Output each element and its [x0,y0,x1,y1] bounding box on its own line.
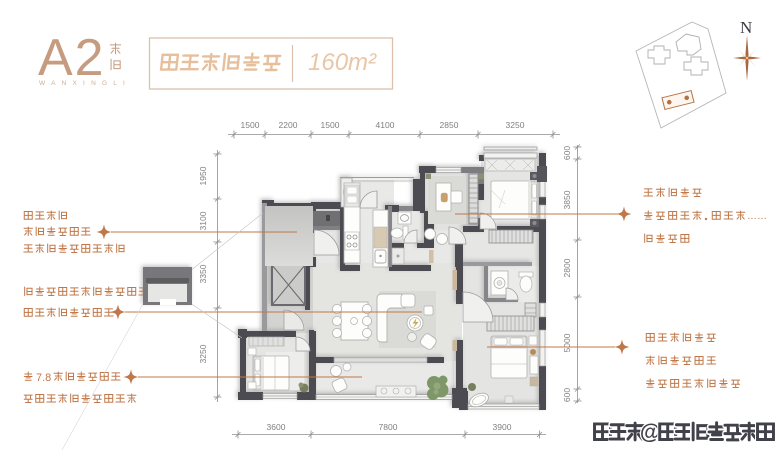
svg-text:3250: 3250 [506,120,525,130]
svg-text:3850: 3850 [562,190,572,209]
svg-text:2850: 2850 [440,120,459,130]
svg-text:……: …… [747,211,767,222]
svg-text:3350: 3350 [198,264,208,283]
svg-text:7800: 7800 [379,422,398,432]
svg-text:160m²: 160m² [308,49,377,76]
svg-text:5000: 5000 [562,333,572,352]
svg-text:WANXINGLI: WANXINGLI [39,80,131,87]
svg-text:7.8: 7.8 [36,372,51,384]
svg-text:2200: 2200 [279,120,298,130]
svg-text:1950: 1950 [198,166,208,185]
svg-text:600: 600 [562,388,572,402]
svg-text:2800: 2800 [562,258,572,277]
svg-text:1500: 1500 [321,120,340,130]
svg-text:1500: 1500 [241,120,260,130]
svg-text:N: N [740,18,752,37]
svg-text:4100: 4100 [376,120,395,130]
svg-text:3600: 3600 [267,422,286,432]
svg-text:3900: 3900 [493,422,512,432]
svg-text:A2: A2 [38,29,106,87]
svg-text:3100: 3100 [198,211,208,230]
svg-text:3250: 3250 [198,344,208,363]
svg-text:600: 600 [562,146,572,160]
